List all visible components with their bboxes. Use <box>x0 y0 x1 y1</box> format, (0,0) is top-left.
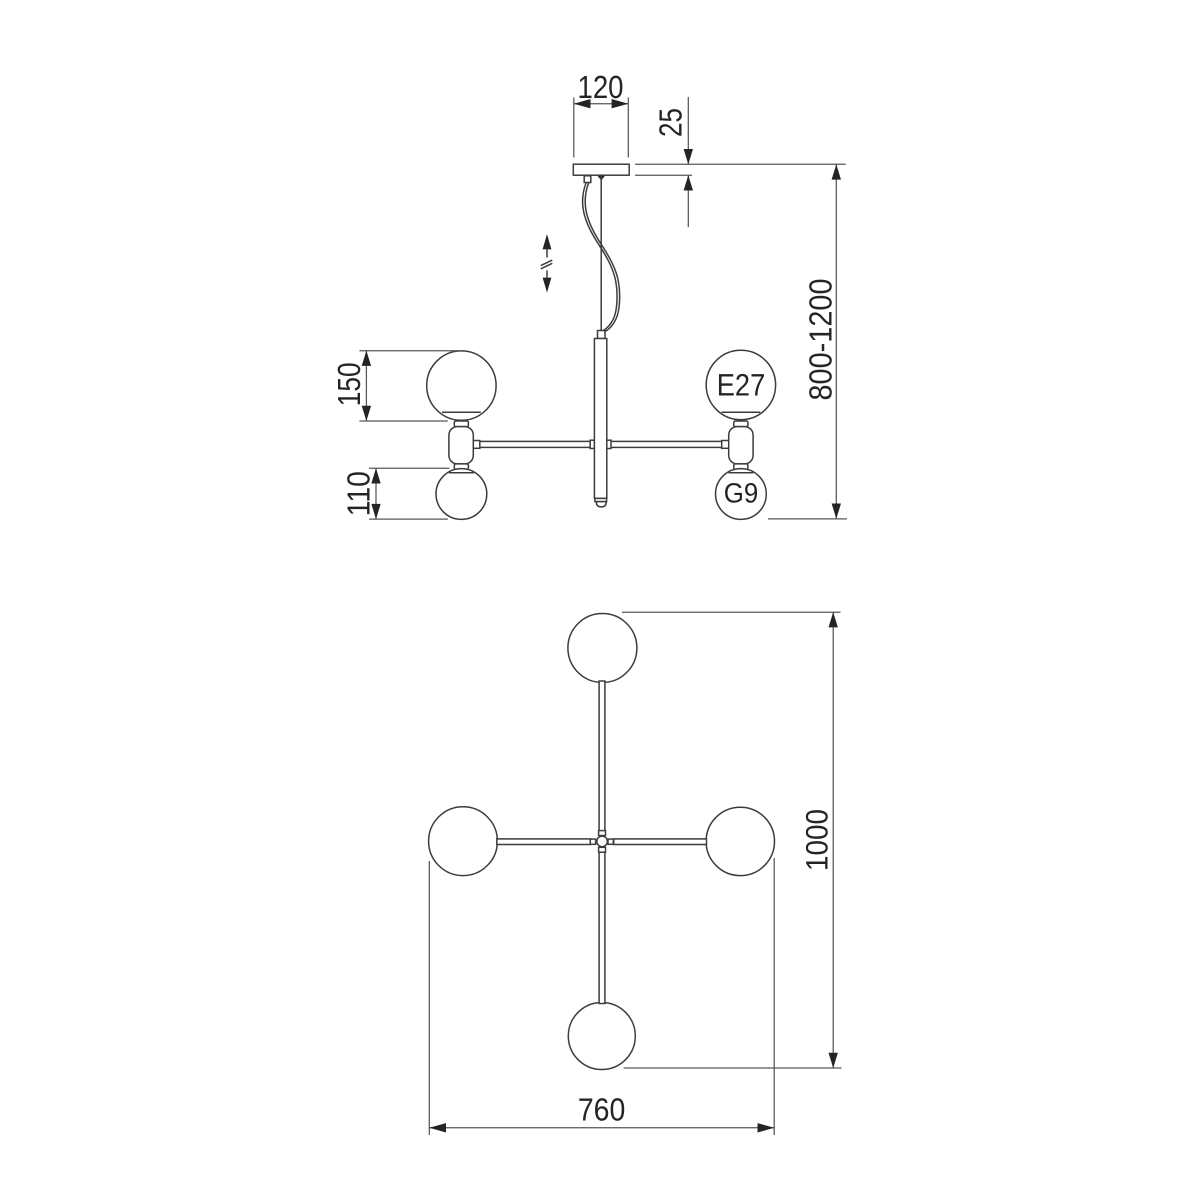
svg-text:110: 110 <box>341 471 377 516</box>
svg-text:E27: E27 <box>717 368 766 403</box>
svg-text:G9: G9 <box>724 478 759 509</box>
svg-text:120: 120 <box>578 69 624 105</box>
svg-text:1000: 1000 <box>800 809 835 871</box>
svg-text:760: 760 <box>578 1092 626 1128</box>
svg-text:800-1200: 800-1200 <box>803 279 839 401</box>
svg-text:150: 150 <box>331 362 367 406</box>
svg-text:25: 25 <box>653 108 689 137</box>
